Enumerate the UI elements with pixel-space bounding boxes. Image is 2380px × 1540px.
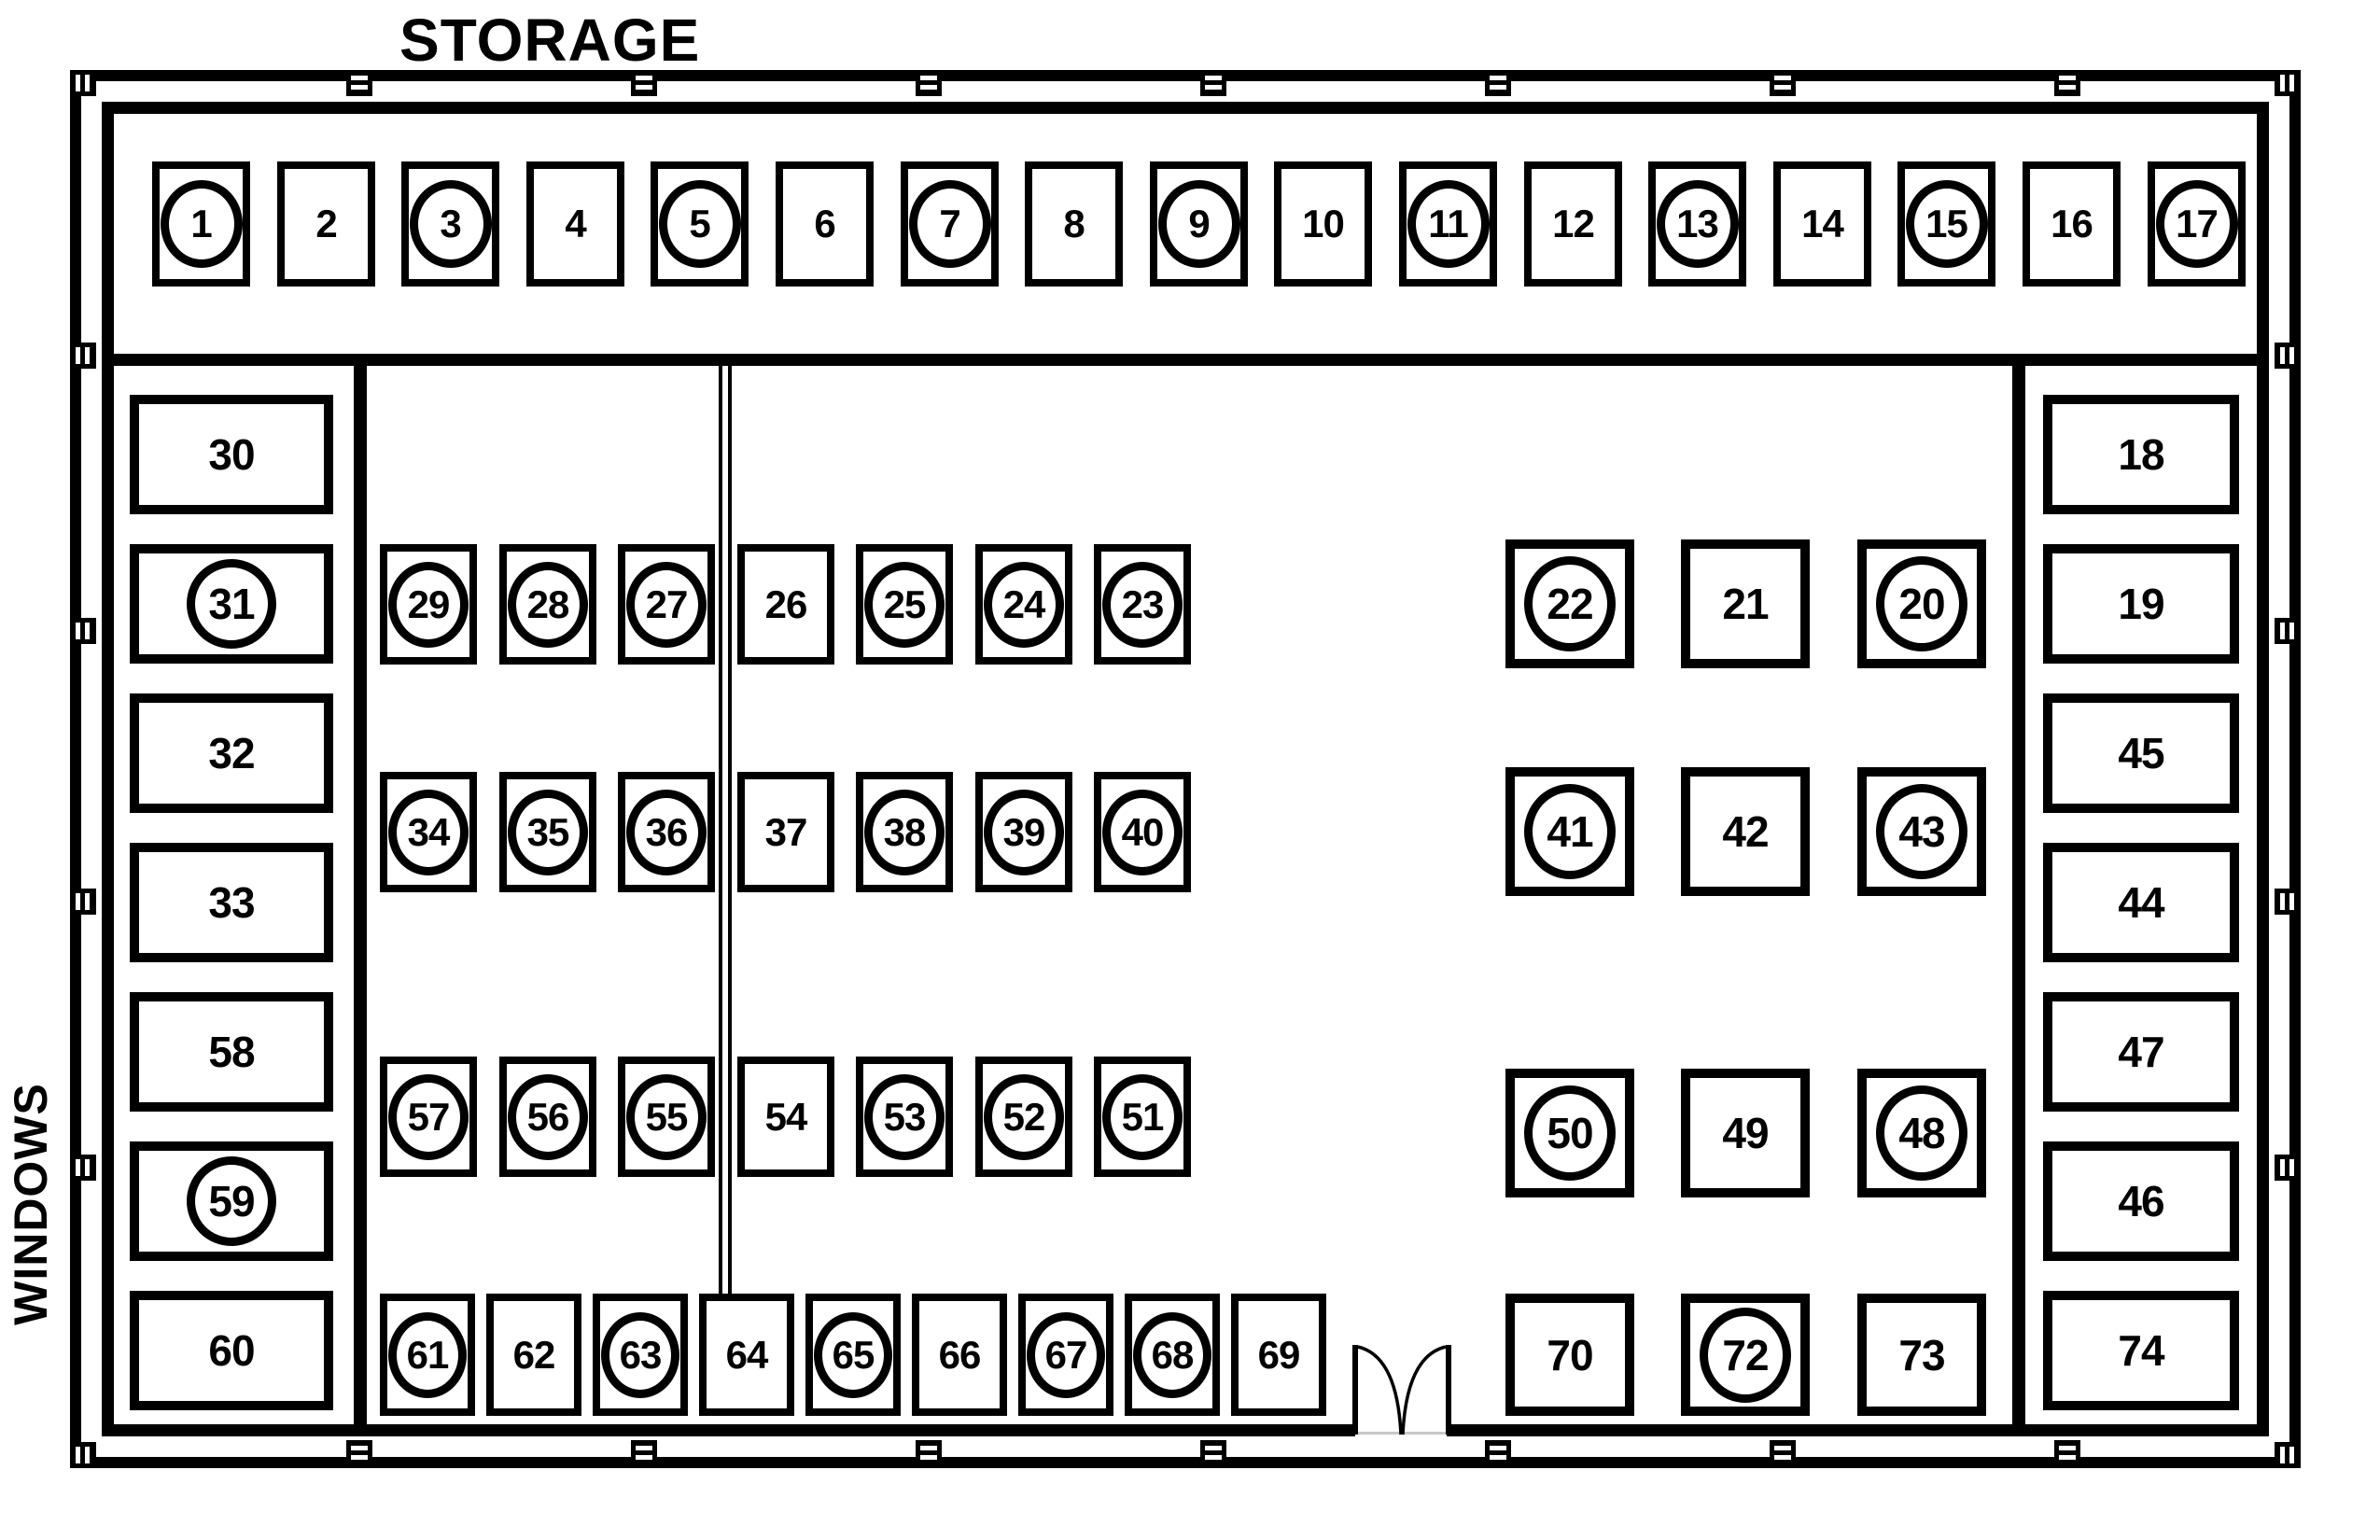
tick-slit bbox=[2280, 893, 2285, 910]
circle-marker-icon: 13 bbox=[1657, 180, 1739, 268]
tick-slit bbox=[85, 623, 90, 639]
desk-27: 27 bbox=[618, 544, 715, 665]
corner-tick-icon bbox=[70, 1442, 96, 1468]
tick-slit bbox=[1205, 85, 1222, 90]
desk-45: 45 bbox=[2043, 693, 2239, 813]
tick-slit bbox=[1205, 1455, 1222, 1460]
desk-21: 21 bbox=[1681, 539, 1810, 668]
desk-73: 73 bbox=[1857, 1294, 1986, 1416]
circle-marker-icon: 43 bbox=[1876, 784, 1967, 879]
tick-slit bbox=[85, 347, 90, 364]
desk-number: 18 bbox=[2118, 433, 2163, 476]
circle-marker-icon: 23 bbox=[1102, 562, 1183, 648]
circle-marker-icon: 36 bbox=[626, 790, 707, 875]
circle-marker-icon: 22 bbox=[1524, 556, 1616, 651]
desk-number: 62 bbox=[513, 1336, 555, 1375]
desk-51: 51 bbox=[1094, 1057, 1191, 1177]
desk-64: 64 bbox=[699, 1294, 794, 1416]
circle-marker-icon: 51 bbox=[1102, 1074, 1183, 1160]
desk-29: 29 bbox=[380, 544, 477, 665]
desk-number: 41 bbox=[1547, 810, 1592, 853]
desk-63: 63 bbox=[593, 1294, 688, 1416]
desk-32: 32 bbox=[130, 693, 333, 813]
desk-52: 52 bbox=[975, 1057, 1072, 1177]
left-panel-border bbox=[354, 366, 367, 1424]
wall-tick-icon bbox=[631, 1440, 657, 1466]
tick-slit bbox=[920, 1446, 937, 1450]
circle-marker-icon: 7 bbox=[909, 180, 991, 268]
desk-number: 67 bbox=[1045, 1336, 1087, 1375]
tick-slit bbox=[920, 85, 937, 90]
desk-number: 74 bbox=[2118, 1329, 2163, 1372]
desk-3: 3 bbox=[401, 161, 499, 287]
tick-slit bbox=[2289, 893, 2294, 910]
desk-number: 20 bbox=[1898, 582, 1944, 625]
circle-marker-icon: 68 bbox=[1133, 1312, 1211, 1398]
desk-36: 36 bbox=[618, 772, 715, 892]
desk-number: 28 bbox=[527, 585, 569, 624]
desk-number: 63 bbox=[620, 1336, 662, 1375]
desk-number: 4 bbox=[565, 204, 585, 244]
desk-47: 47 bbox=[2043, 992, 2239, 1112]
desk-number: 15 bbox=[1925, 204, 1967, 244]
wall-tick-icon bbox=[2275, 1155, 2301, 1181]
desk-4: 4 bbox=[526, 161, 624, 287]
desk-number: 17 bbox=[2176, 204, 2218, 244]
desk-65: 65 bbox=[805, 1294, 901, 1416]
desk-number: 69 bbox=[1258, 1336, 1300, 1375]
desk-number: 30 bbox=[208, 433, 254, 476]
wall-tick-icon bbox=[2275, 343, 2301, 369]
desk-58: 58 bbox=[130, 992, 333, 1112]
desk-number: 58 bbox=[208, 1030, 254, 1073]
tick-slit bbox=[1490, 85, 1506, 90]
desk-42: 42 bbox=[1681, 767, 1810, 896]
desk-number: 2 bbox=[315, 204, 336, 244]
tick-slit bbox=[920, 1455, 937, 1460]
desk-number: 51 bbox=[1122, 1098, 1164, 1137]
tick-slit bbox=[1205, 1446, 1222, 1450]
circle-marker-icon: 57 bbox=[388, 1074, 469, 1160]
wall-tick-icon bbox=[1485, 1440, 1511, 1466]
desk-number: 57 bbox=[408, 1098, 450, 1137]
desk-5: 5 bbox=[651, 161, 749, 287]
circle-marker-icon: 39 bbox=[984, 790, 1064, 875]
tick-slit bbox=[2280, 623, 2285, 639]
desk-number: 72 bbox=[1722, 1334, 1768, 1377]
center-partition bbox=[719, 366, 732, 1294]
desk-number: 1 bbox=[190, 204, 211, 244]
desk-number: 29 bbox=[408, 585, 450, 624]
wall-tick-icon bbox=[1200, 1440, 1226, 1466]
tick-slit bbox=[351, 85, 368, 90]
desk-7: 7 bbox=[901, 161, 999, 287]
desk-number: 12 bbox=[1552, 204, 1594, 244]
tick-slit bbox=[351, 76, 368, 80]
desk-19: 19 bbox=[2043, 544, 2239, 664]
desk-55: 55 bbox=[618, 1057, 715, 1177]
desk-number: 34 bbox=[408, 813, 450, 852]
wall-tick-icon bbox=[1200, 70, 1226, 96]
circle-marker-icon: 11 bbox=[1407, 180, 1490, 268]
tick-slit bbox=[2289, 75, 2294, 91]
desk-number: 47 bbox=[2118, 1030, 2163, 1073]
desk-number: 55 bbox=[646, 1098, 688, 1137]
tick-slit bbox=[2059, 1446, 2076, 1450]
desk-number: 40 bbox=[1122, 813, 1164, 852]
tick-slit bbox=[636, 1455, 652, 1460]
desk-number: 68 bbox=[1152, 1336, 1194, 1375]
desk-number: 35 bbox=[527, 813, 569, 852]
tick-slit bbox=[2289, 1447, 2294, 1463]
desk-38: 38 bbox=[856, 772, 953, 892]
tick-slit bbox=[351, 1455, 368, 1460]
tick-slit bbox=[636, 76, 652, 80]
wall-tick-icon bbox=[1770, 70, 1796, 96]
wall-tick-icon bbox=[70, 343, 96, 369]
circle-marker-icon: 50 bbox=[1524, 1085, 1616, 1181]
desk-67: 67 bbox=[1018, 1294, 1113, 1416]
desk-number: 49 bbox=[1722, 1112, 1768, 1155]
tick-slit bbox=[1490, 1455, 1506, 1460]
desk-69: 69 bbox=[1231, 1294, 1326, 1416]
desk-24: 24 bbox=[975, 544, 1072, 665]
desk-53: 53 bbox=[856, 1057, 953, 1177]
corner-tick-icon bbox=[2275, 1442, 2301, 1468]
tick-slit bbox=[2280, 1447, 2285, 1463]
desk-31: 31 bbox=[130, 544, 333, 664]
desk-number: 59 bbox=[208, 1180, 254, 1223]
desk-number: 25 bbox=[884, 585, 926, 624]
desk-number: 13 bbox=[1676, 204, 1718, 244]
desk-number: 9 bbox=[1188, 204, 1209, 244]
desk-number: 8 bbox=[1063, 204, 1084, 244]
tick-slit bbox=[2289, 347, 2294, 364]
desk-number: 16 bbox=[2051, 204, 2093, 244]
desk-37: 37 bbox=[737, 772, 834, 892]
circle-marker-icon: 55 bbox=[626, 1074, 707, 1160]
desk-35: 35 bbox=[499, 772, 596, 892]
wall-tick-icon bbox=[346, 1440, 372, 1466]
desk-number: 10 bbox=[1302, 204, 1344, 244]
desk-9: 9 bbox=[1150, 161, 1248, 287]
desk-34: 34 bbox=[380, 772, 477, 892]
desk-number: 7 bbox=[939, 204, 959, 244]
desk-62: 62 bbox=[486, 1294, 581, 1416]
wall-tick-icon bbox=[346, 70, 372, 96]
desk-number: 65 bbox=[833, 1336, 875, 1375]
circle-marker-icon: 38 bbox=[864, 790, 945, 875]
circle-marker-icon: 25 bbox=[864, 562, 945, 648]
tick-slit bbox=[85, 1159, 90, 1176]
circle-marker-icon: 52 bbox=[984, 1074, 1064, 1160]
tick-slit bbox=[1490, 76, 1506, 80]
desk-number: 23 bbox=[1122, 585, 1164, 624]
desk-number: 61 bbox=[407, 1336, 449, 1375]
wall-tick-icon bbox=[2275, 618, 2301, 644]
tick-slit bbox=[636, 85, 652, 90]
circle-marker-icon: 24 bbox=[984, 562, 1064, 648]
wall-tick-icon bbox=[70, 1155, 96, 1181]
desk-20: 20 bbox=[1857, 539, 1986, 668]
wall-tick-icon bbox=[631, 70, 657, 96]
desk-number: 44 bbox=[2118, 881, 2163, 924]
desk-60: 60 bbox=[130, 1291, 333, 1410]
tick-slit bbox=[2280, 1159, 2285, 1176]
desk-72: 72 bbox=[1681, 1294, 1810, 1416]
wall-tick-icon bbox=[2054, 1440, 2080, 1466]
tick-slit bbox=[1205, 76, 1222, 80]
wall-tick-icon bbox=[916, 1440, 942, 1466]
desk-number: 11 bbox=[1428, 204, 1467, 244]
circle-marker-icon: 72 bbox=[1700, 1308, 1791, 1403]
tick-slit bbox=[2289, 1159, 2294, 1176]
tick-slit bbox=[76, 75, 80, 91]
desk-66: 66 bbox=[912, 1294, 1007, 1416]
desk-49: 49 bbox=[1681, 1069, 1810, 1197]
tick-slit bbox=[85, 1447, 90, 1463]
desk-number: 14 bbox=[1801, 204, 1843, 244]
tick-slit bbox=[1774, 1455, 1791, 1460]
circle-marker-icon: 61 bbox=[388, 1312, 467, 1398]
desk-number: 33 bbox=[208, 881, 254, 924]
tick-slit bbox=[76, 1447, 80, 1463]
desk-44: 44 bbox=[2043, 843, 2239, 962]
circle-marker-icon: 1 bbox=[161, 180, 243, 268]
desk-17: 17 bbox=[2148, 161, 2246, 287]
desk-68: 68 bbox=[1125, 1294, 1220, 1416]
circle-marker-icon: 59 bbox=[187, 1156, 276, 1246]
desk-26: 26 bbox=[737, 544, 834, 665]
tick-slit bbox=[1774, 1446, 1791, 1450]
desk-number: 26 bbox=[765, 585, 807, 624]
desk-15: 15 bbox=[1897, 161, 1995, 287]
circle-marker-icon: 28 bbox=[508, 562, 588, 648]
desk-number: 64 bbox=[726, 1336, 768, 1375]
desk-16: 16 bbox=[2023, 161, 2121, 287]
desk-40: 40 bbox=[1094, 772, 1191, 892]
desk-number: 6 bbox=[814, 204, 834, 244]
desk-number: 45 bbox=[2118, 732, 2163, 775]
wall-tick-icon bbox=[2054, 70, 2080, 96]
storage-row-divider bbox=[114, 354, 2257, 366]
tick-slit bbox=[2059, 85, 2076, 90]
tick-slit bbox=[920, 76, 937, 80]
circle-marker-icon: 41 bbox=[1524, 784, 1616, 879]
desk-22: 22 bbox=[1505, 539, 1634, 668]
desk-1: 1 bbox=[152, 161, 250, 287]
desk-56: 56 bbox=[499, 1057, 596, 1177]
desk-57: 57 bbox=[380, 1057, 477, 1177]
desk-number: 48 bbox=[1898, 1112, 1944, 1155]
desk-39: 39 bbox=[975, 772, 1072, 892]
circle-marker-icon: 53 bbox=[864, 1074, 945, 1160]
desk-number: 38 bbox=[884, 813, 926, 852]
desk-33: 33 bbox=[130, 843, 333, 962]
desk-23: 23 bbox=[1094, 544, 1191, 665]
desk-number: 73 bbox=[1898, 1334, 1944, 1377]
tick-slit bbox=[85, 75, 90, 91]
circle-marker-icon: 15 bbox=[1906, 180, 1988, 268]
double-door-icon bbox=[1350, 1341, 1454, 1436]
storage-label: STORAGE bbox=[399, 6, 700, 75]
desk-10: 10 bbox=[1274, 161, 1372, 287]
right-panel-border bbox=[2012, 366, 2025, 1424]
desk-number: 21 bbox=[1722, 582, 1768, 625]
desk-number: 46 bbox=[2118, 1180, 2163, 1223]
desk-number: 31 bbox=[208, 582, 254, 625]
desk-number: 3 bbox=[440, 204, 460, 244]
tick-slit bbox=[2280, 75, 2285, 91]
circle-marker-icon: 34 bbox=[388, 790, 469, 875]
desk-70: 70 bbox=[1505, 1294, 1634, 1416]
desk-25: 25 bbox=[856, 544, 953, 665]
circle-marker-icon: 65 bbox=[814, 1312, 892, 1398]
desk-number: 32 bbox=[208, 732, 254, 775]
desk-74: 74 bbox=[2043, 1291, 2239, 1410]
desk-54: 54 bbox=[737, 1057, 834, 1177]
circle-marker-icon: 40 bbox=[1102, 790, 1183, 875]
circle-marker-icon: 20 bbox=[1876, 556, 1967, 651]
desk-18: 18 bbox=[2043, 395, 2239, 514]
wall-tick-icon bbox=[1770, 1440, 1796, 1466]
desk-11: 11 bbox=[1399, 161, 1497, 287]
circle-marker-icon: 67 bbox=[1027, 1312, 1105, 1398]
floor-plan: STORAGE WINDOWS 123456789101112131415161… bbox=[0, 0, 2380, 1540]
tick-slit bbox=[76, 623, 80, 639]
desk-number: 54 bbox=[765, 1098, 807, 1137]
desk-number: 42 bbox=[1722, 810, 1768, 853]
desk-number: 36 bbox=[646, 813, 688, 852]
tick-slit bbox=[1774, 85, 1791, 90]
circle-marker-icon: 56 bbox=[508, 1074, 588, 1160]
circle-marker-icon: 48 bbox=[1876, 1085, 1967, 1181]
tick-slit bbox=[636, 1446, 652, 1450]
circle-marker-icon: 29 bbox=[388, 562, 469, 648]
desk-number: 37 bbox=[765, 813, 807, 852]
desk-number: 19 bbox=[2118, 582, 2163, 625]
desk-number: 53 bbox=[884, 1098, 926, 1137]
wall-tick-icon bbox=[916, 70, 942, 96]
wall-tick-icon bbox=[2275, 889, 2301, 915]
desk-43: 43 bbox=[1857, 767, 1986, 896]
desk-48: 48 bbox=[1857, 1069, 1986, 1197]
tick-slit bbox=[76, 1159, 80, 1176]
desk-number: 22 bbox=[1547, 582, 1592, 625]
desk-number: 5 bbox=[689, 204, 709, 244]
circle-marker-icon: 31 bbox=[187, 559, 276, 649]
circle-marker-icon: 35 bbox=[508, 790, 588, 875]
wall-tick-icon bbox=[70, 618, 96, 644]
corner-tick-icon bbox=[70, 70, 96, 96]
desk-number: 50 bbox=[1547, 1112, 1592, 1155]
circle-marker-icon: 27 bbox=[626, 562, 707, 648]
desk-50: 50 bbox=[1505, 1069, 1634, 1197]
tick-slit bbox=[351, 1446, 368, 1450]
desk-59: 59 bbox=[130, 1141, 333, 1261]
desk-12: 12 bbox=[1524, 161, 1622, 287]
tick-slit bbox=[76, 893, 80, 910]
desk-28: 28 bbox=[499, 544, 596, 665]
desk-number: 43 bbox=[1898, 810, 1944, 853]
desk-number: 60 bbox=[208, 1329, 254, 1372]
corner-tick-icon bbox=[2275, 70, 2301, 96]
desk-number: 39 bbox=[1003, 813, 1045, 852]
desk-number: 52 bbox=[1003, 1098, 1045, 1137]
circle-marker-icon: 3 bbox=[410, 180, 492, 268]
wall-tick-icon bbox=[70, 889, 96, 915]
tick-slit bbox=[1490, 1446, 1506, 1450]
tick-slit bbox=[2059, 1455, 2076, 1460]
desk-46: 46 bbox=[2043, 1141, 2239, 1261]
desk-41: 41 bbox=[1505, 767, 1634, 896]
tick-slit bbox=[1774, 76, 1791, 80]
desk-2: 2 bbox=[277, 161, 375, 287]
circle-marker-icon: 17 bbox=[2156, 180, 2238, 268]
tick-slit bbox=[85, 893, 90, 910]
tick-slit bbox=[2280, 347, 2285, 364]
windows-label: WINDOWS bbox=[4, 1081, 56, 1327]
desk-number: 66 bbox=[939, 1336, 981, 1375]
tick-slit bbox=[76, 347, 80, 364]
desk-number: 24 bbox=[1003, 585, 1045, 624]
circle-marker-icon: 9 bbox=[1158, 180, 1240, 268]
desk-6: 6 bbox=[776, 161, 874, 287]
circle-marker-icon: 5 bbox=[659, 180, 741, 268]
tick-slit bbox=[2059, 76, 2076, 80]
desk-13: 13 bbox=[1648, 161, 1746, 287]
desk-8: 8 bbox=[1025, 161, 1123, 287]
desk-number: 56 bbox=[527, 1098, 569, 1137]
desk-14: 14 bbox=[1773, 161, 1871, 287]
tick-slit bbox=[2289, 623, 2294, 639]
desk-61: 61 bbox=[380, 1294, 475, 1416]
wall-tick-icon bbox=[1485, 70, 1511, 96]
desk-number: 70 bbox=[1547, 1334, 1592, 1377]
circle-marker-icon: 63 bbox=[601, 1312, 679, 1398]
desk-30: 30 bbox=[130, 395, 333, 514]
desk-number: 27 bbox=[646, 585, 688, 624]
